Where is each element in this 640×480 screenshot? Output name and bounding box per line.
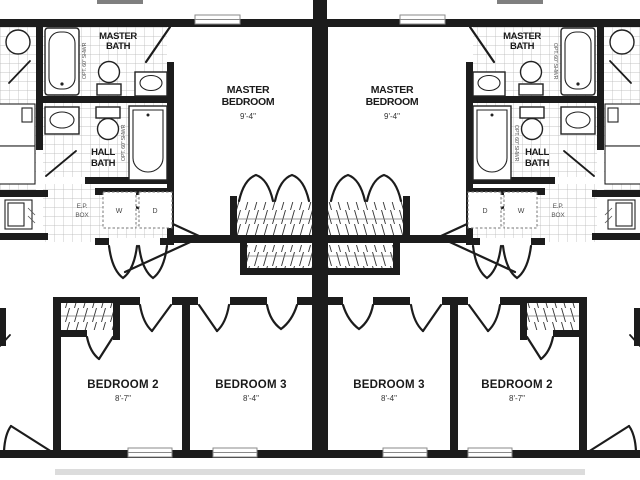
ep-box-label-right: E.P. bbox=[553, 203, 564, 210]
ep-box-label-left2: BOX bbox=[75, 212, 89, 219]
hall-bath-label-left: HALL bbox=[91, 147, 115, 158]
tub-note-hall-right: OPT. 60" SHWR bbox=[513, 125, 519, 162]
bedroom3-label-right: BEDROOM 3 bbox=[353, 379, 424, 391]
bedroom2-door bbox=[140, 305, 171, 331]
master-bath-label-left2: BATH bbox=[106, 41, 131, 52]
hall-bath-label-right: HALL bbox=[525, 147, 549, 158]
bedroom2-dim-left: 8'-7" bbox=[115, 394, 131, 403]
laundry-bifold-doors bbox=[109, 246, 167, 278]
master-bedroom-dim-left: 9'-4" bbox=[240, 112, 256, 121]
vanity-sink bbox=[135, 72, 167, 96]
water-heater-closet bbox=[1, 197, 39, 233]
master-bedroom-label-right2: BEDROOM bbox=[366, 96, 419, 108]
bedroom2-label-right: BEDROOM 2 bbox=[481, 379, 552, 391]
ep-box-label-left: E.P. bbox=[77, 203, 88, 210]
sink bbox=[22, 108, 32, 122]
hall-bath-label-right2: BATH bbox=[525, 158, 550, 169]
bedroom3-label-left: BEDROOM 3 bbox=[215, 379, 286, 391]
roof-line bbox=[97, 0, 143, 4]
bathtub bbox=[45, 28, 79, 95]
tub-note-master-right: OPT. 60" SHWR bbox=[552, 43, 558, 80]
toilet bbox=[97, 62, 121, 96]
floor-plan-page: MASTER BATH HALL BATH MASTER BEDROOM 9'-… bbox=[0, 0, 640, 480]
window-bedroom3 bbox=[213, 448, 257, 457]
bathtub bbox=[129, 106, 167, 180]
master-bedroom-label-right: MASTER bbox=[371, 84, 414, 96]
bedroom3-dim-left: 8'-4" bbox=[243, 394, 259, 403]
dryer-label-right: D bbox=[482, 208, 487, 215]
bedroom3-door bbox=[199, 305, 229, 331]
bedroom2-label-left: BEDROOM 2 bbox=[87, 379, 158, 391]
tub-note-hall-left: OPT. 60" SHWR bbox=[121, 125, 127, 162]
master-bedroom-dim-right: 9'-4" bbox=[384, 112, 400, 121]
toilet-bowl bbox=[6, 30, 30, 54]
bedroom3-dim-right: 8'-4" bbox=[381, 394, 397, 403]
washer-label-right: W bbox=[518, 208, 525, 215]
vanity-sink bbox=[45, 107, 79, 134]
bedroom2-dim-right: 8'-7" bbox=[509, 394, 525, 403]
window-bedroom2 bbox=[128, 448, 172, 457]
master-bedroom-label-left2: BEDROOM bbox=[222, 96, 275, 108]
master-bedroom-label-left: MASTER bbox=[227, 84, 270, 96]
dryer-label-left: D bbox=[152, 208, 157, 215]
bedroom3-closet bbox=[247, 245, 312, 329]
tub-note-master-left: OPT. 60" SHWR bbox=[82, 43, 88, 80]
master-bath-label-right2: BATH bbox=[510, 41, 535, 52]
side-entry-door bbox=[4, 426, 52, 452]
duplex-floor-plan: MASTER BATH HALL BATH MASTER BEDROOM 9'-… bbox=[0, 0, 640, 480]
window-master-bedroom bbox=[195, 15, 240, 24]
counter bbox=[0, 146, 35, 184]
toilet bbox=[96, 107, 120, 140]
washer-label-left: W bbox=[116, 208, 123, 215]
master-closet bbox=[237, 175, 312, 235]
ep-box-label-right2: BOX bbox=[551, 212, 565, 219]
hall-bath-label-left2: BATH bbox=[91, 158, 116, 169]
scan-shadow bbox=[55, 469, 585, 475]
